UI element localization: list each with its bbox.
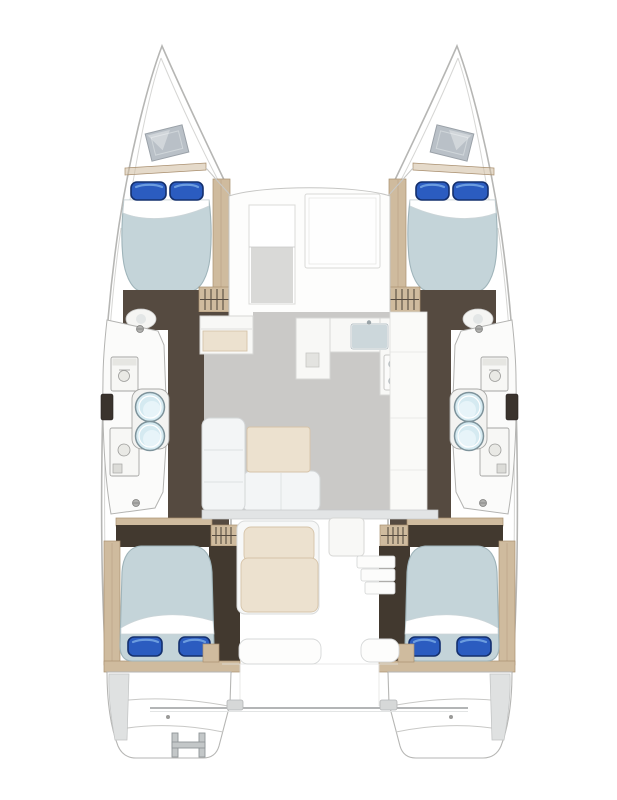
aft-deck-trim-starboard xyxy=(398,644,414,662)
sideboard-cabinet xyxy=(200,316,253,354)
aft-locker-starboard xyxy=(361,639,399,662)
beam-bracket-starboard xyxy=(380,700,397,710)
galley-cabinet-door xyxy=(306,353,319,367)
saloon-table xyxy=(247,427,310,472)
aft-deck-trim-port xyxy=(203,644,219,662)
sliding-door-track xyxy=(202,510,438,519)
galley-sink xyxy=(351,320,388,349)
cockpit-steps xyxy=(357,556,395,594)
beam-bracket-port xyxy=(227,700,243,710)
galley-counter-left xyxy=(296,318,330,379)
floorplan-svg xyxy=(0,0,617,800)
catamaran-floorplan xyxy=(0,0,617,800)
cockpit-bench xyxy=(329,518,364,556)
aft-locker-port xyxy=(239,639,321,664)
forward-door-panel xyxy=(249,205,295,304)
cockpit-sofa xyxy=(237,521,319,614)
coachroof-panel xyxy=(305,194,380,268)
starboard-hull-top-units xyxy=(390,312,427,512)
